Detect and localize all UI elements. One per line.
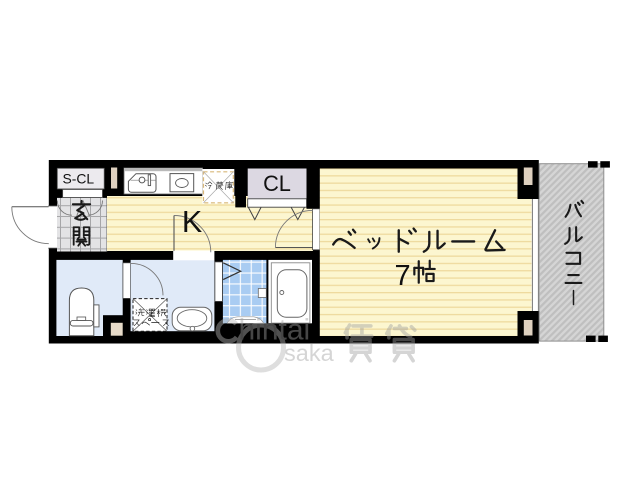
svg-text:S-CL: S-CL <box>62 171 94 187</box>
svg-text:saka: saka <box>284 340 335 366</box>
svg-text:CL: CL <box>263 171 291 196</box>
svg-text:K: K <box>182 205 202 239</box>
svg-text:7: 7 <box>395 260 411 292</box>
